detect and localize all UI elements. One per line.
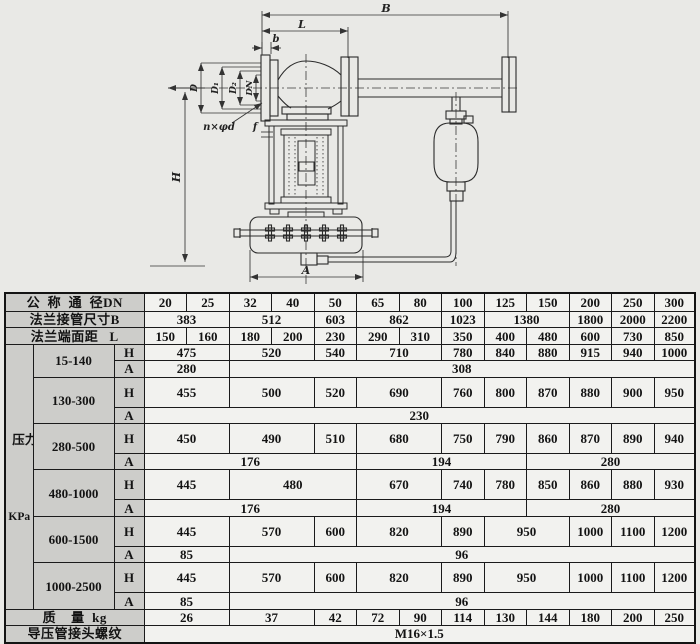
dn-value: 32 xyxy=(229,293,272,312)
range-label: 480-1000 xyxy=(33,470,114,516)
dn-value: 250 xyxy=(612,293,655,312)
table-cell: 750 xyxy=(442,424,485,454)
table-cell: 490 xyxy=(229,424,314,454)
a-label: A xyxy=(114,593,144,609)
dn-value: 200 xyxy=(569,293,612,312)
table-cell: 130 xyxy=(484,609,527,625)
table-cell: 730 xyxy=(612,328,655,344)
dimension-table: 公 称 通 径DN 20 25 32 40 50 65 80 100 125 1… xyxy=(4,292,696,644)
table-cell: 176 xyxy=(144,454,357,470)
table-cell: 310 xyxy=(399,328,442,344)
table-cell: 1800 xyxy=(569,312,612,328)
table-cell: 85 xyxy=(144,593,229,609)
table-cell: 1000 xyxy=(654,344,695,360)
table-cell: 72 xyxy=(357,609,400,625)
table-cell: 870 xyxy=(527,377,570,407)
table-cell: 570 xyxy=(229,516,314,546)
table-cell: 180 xyxy=(569,609,612,625)
table-cell: 890 xyxy=(612,424,655,454)
row-range-3-h: 480-1000 H 445 480 670 740 780 850 860 8… xyxy=(5,470,695,500)
table-cell: 445 xyxy=(144,516,229,546)
table-cell: 230 xyxy=(314,328,357,344)
dn-value: 80 xyxy=(399,293,442,312)
table-cell: 85 xyxy=(144,546,229,562)
table-cell: 480 xyxy=(527,328,570,344)
table-cell: 350 xyxy=(442,328,485,344)
range-label: 130-300 xyxy=(33,377,114,423)
range-label: 15-140 xyxy=(33,344,114,377)
table-cell: 520 xyxy=(229,344,314,360)
table-cell: 600 xyxy=(314,516,357,546)
table-cell: 160 xyxy=(187,328,230,344)
table-cell: 900 xyxy=(612,377,655,407)
table-cell: 475 xyxy=(144,344,229,360)
row-flange-size-b: 法兰接管尺寸B 383 512 603 862 1023 1380 1800 2… xyxy=(5,312,695,328)
table-cell: 1200 xyxy=(654,563,695,593)
table-cell: 520 xyxy=(314,377,357,407)
dim-label-B: B xyxy=(380,2,390,15)
table-cell: 144 xyxy=(527,609,570,625)
a-label: A xyxy=(114,500,144,516)
table-cell: 890 xyxy=(442,516,485,546)
row-range-1-h: 130-300 H 455 500 520 690 760 800 870 88… xyxy=(5,377,695,407)
table-cell: 540 xyxy=(314,344,357,360)
table-cell: 860 xyxy=(527,424,570,454)
dn-value: 300 xyxy=(654,293,695,312)
table-cell: 850 xyxy=(527,470,570,500)
table-cell: 740 xyxy=(442,470,485,500)
dn-value: 100 xyxy=(442,293,485,312)
table-cell: 2000 xyxy=(612,312,655,328)
row-label-face-l: 法兰端面距 L xyxy=(5,328,144,344)
row-label-mass: 质 量 kg xyxy=(5,609,144,625)
table-cell: 200 xyxy=(612,609,655,625)
dim-label-D2: D₂ xyxy=(229,82,239,95)
table-cell: 690 xyxy=(357,377,442,407)
table-cell: 96 xyxy=(229,593,695,609)
table-cell: 280 xyxy=(527,454,696,470)
row-nominal-diameter: 公 称 通 径DN 20 25 32 40 50 65 80 100 125 1… xyxy=(5,293,695,312)
row-thread: 导压管接头螺纹 M16×1.5 xyxy=(5,626,695,643)
table-cell: 600 xyxy=(314,563,357,593)
dim-label-L: L xyxy=(297,18,306,31)
table-cell: 90 xyxy=(399,609,442,625)
table-cell: 96 xyxy=(229,546,695,562)
table-cell: 680 xyxy=(357,424,442,454)
table-cell: 37 xyxy=(229,609,314,625)
table-cell: 760 xyxy=(442,377,485,407)
table-cell: 290 xyxy=(357,328,400,344)
table-cell: 862 xyxy=(357,312,442,328)
row-range-4-h: 600-1500 H 445 570 600 820 890 950 1000 … xyxy=(5,516,695,546)
table-cell: 400 xyxy=(484,328,527,344)
dim-label-DN: DN xyxy=(245,79,255,96)
table-cell: 26 xyxy=(144,609,229,625)
table-cell: 194 xyxy=(357,454,527,470)
dn-value: 50 xyxy=(314,293,357,312)
table-cell: 670 xyxy=(357,470,442,500)
row-label-thread: 导压管接头螺纹 xyxy=(5,626,144,643)
h-label: H xyxy=(114,563,144,593)
table-cell: 950 xyxy=(654,377,695,407)
table-cell: 510 xyxy=(314,424,357,454)
table-cell: 820 xyxy=(357,516,442,546)
table-cell: 780 xyxy=(484,470,527,500)
pressure-range-unit: KPa xyxy=(8,512,30,524)
dn-value: 150 xyxy=(527,293,570,312)
dn-value: 25 xyxy=(187,293,230,312)
table-cell: 2200 xyxy=(654,312,695,328)
table-cell: 500 xyxy=(229,377,314,407)
table-cell: 1023 xyxy=(442,312,485,328)
dim-label-A: A xyxy=(301,264,311,277)
table-cell: 280 xyxy=(527,500,696,516)
valve-technical-drawing: B L b D D₁ D₂ DN n×φd f H A xyxy=(0,0,700,292)
dim-label-D: D xyxy=(190,84,200,93)
table-cell: 450 xyxy=(144,424,229,454)
table-cell: 150 xyxy=(144,328,187,344)
pressure-range-vertical-text: 压力调节范围 xyxy=(12,430,26,452)
table-cell: 445 xyxy=(144,470,229,500)
row-label-flange-b: 法兰接管尺寸B xyxy=(5,312,144,328)
table-cell: 820 xyxy=(357,563,442,593)
dim-label-f: f xyxy=(252,122,259,133)
dim-label-b: b xyxy=(273,34,280,45)
table-cell: 383 xyxy=(144,312,229,328)
range-label: 1000-2500 xyxy=(33,563,114,609)
table-cell: 600 xyxy=(569,328,612,344)
table-cell: 780 xyxy=(442,344,485,360)
table-cell: 114 xyxy=(442,609,485,625)
row-label-dn: 公 称 通 径DN xyxy=(5,293,144,312)
h-label: H xyxy=(114,516,144,546)
dn-value: 20 xyxy=(144,293,187,312)
table-cell: 1200 xyxy=(654,516,695,546)
table-cell: 710 xyxy=(357,344,442,360)
table-cell: 860 xyxy=(569,470,612,500)
row-face-distance-l: 法兰端面距 L 150 160 180 200 230 290 310 350 … xyxy=(5,328,695,344)
table-cell: 308 xyxy=(229,361,695,377)
table-cell: 230 xyxy=(144,407,695,423)
table-cell: 1380 xyxy=(484,312,569,328)
table-cell: 1000 xyxy=(569,516,612,546)
row-range-0-h: 压力调节范围 KPa 15-140 H 475 520 540 710 780 … xyxy=(5,344,695,360)
pressure-range-side-label: 压力调节范围 KPa xyxy=(5,344,33,609)
table-cell: 890 xyxy=(442,563,485,593)
h-label: H xyxy=(114,377,144,407)
row-range-2-h: 280-500 H 450 490 510 680 750 790 860 87… xyxy=(5,424,695,454)
table-cell: 512 xyxy=(229,312,314,328)
table-cell: 790 xyxy=(484,424,527,454)
table-cell: 194 xyxy=(357,500,527,516)
a-label: A xyxy=(114,454,144,470)
table-cell: 200 xyxy=(272,328,315,344)
table-cell: 850 xyxy=(654,328,695,344)
table-cell: 880 xyxy=(527,344,570,360)
table-cell: 250 xyxy=(654,609,695,625)
table-cell: 570 xyxy=(229,563,314,593)
dn-value: 125 xyxy=(484,293,527,312)
dim-label-n-phi-d: n×φd xyxy=(203,122,235,133)
table-cell: 800 xyxy=(484,377,527,407)
table-cell: 1000 xyxy=(569,563,612,593)
h-label: H xyxy=(114,470,144,500)
dn-value: 40 xyxy=(272,293,315,312)
range-label: 600-1500 xyxy=(33,516,114,562)
table-cell: 950 xyxy=(484,516,569,546)
a-label: A xyxy=(114,361,144,377)
range-label: 280-500 xyxy=(33,424,114,470)
table-cell: 455 xyxy=(144,377,229,407)
table-cell: 870 xyxy=(569,424,612,454)
h-label: H xyxy=(114,424,144,454)
h-label: H xyxy=(114,344,144,360)
a-label: A xyxy=(114,407,144,423)
table-cell: 180 xyxy=(229,328,272,344)
table-cell: 280 xyxy=(144,361,229,377)
table-cell: 1100 xyxy=(612,516,655,546)
a-label: A xyxy=(114,546,144,562)
thread-value: M16×1.5 xyxy=(144,626,695,643)
dn-value: 65 xyxy=(357,293,400,312)
table-cell: 950 xyxy=(484,563,569,593)
dim-label-D1: D₁ xyxy=(211,82,221,95)
table-cell: 42 xyxy=(314,609,357,625)
table-cell: 915 xyxy=(569,344,612,360)
table-cell: 880 xyxy=(569,377,612,407)
dim-label-H: H xyxy=(170,171,183,183)
table-cell: 603 xyxy=(314,312,357,328)
dimension-lines xyxy=(150,11,508,282)
table-cell: 1100 xyxy=(612,563,655,593)
table-cell: 176 xyxy=(144,500,357,516)
table-cell: 840 xyxy=(484,344,527,360)
table-cell: 940 xyxy=(654,424,695,454)
row-range-5-h: 1000-2500 H 445 570 600 820 890 950 1000… xyxy=(5,563,695,593)
table-cell: 930 xyxy=(654,470,695,500)
table-cell: 940 xyxy=(612,344,655,360)
table-cell: 880 xyxy=(612,470,655,500)
row-mass: 质 量 kg 26 37 42 72 90 114 130 144 180 20… xyxy=(5,609,695,625)
table-cell: 445 xyxy=(144,563,229,593)
table-cell: 480 xyxy=(229,470,357,500)
